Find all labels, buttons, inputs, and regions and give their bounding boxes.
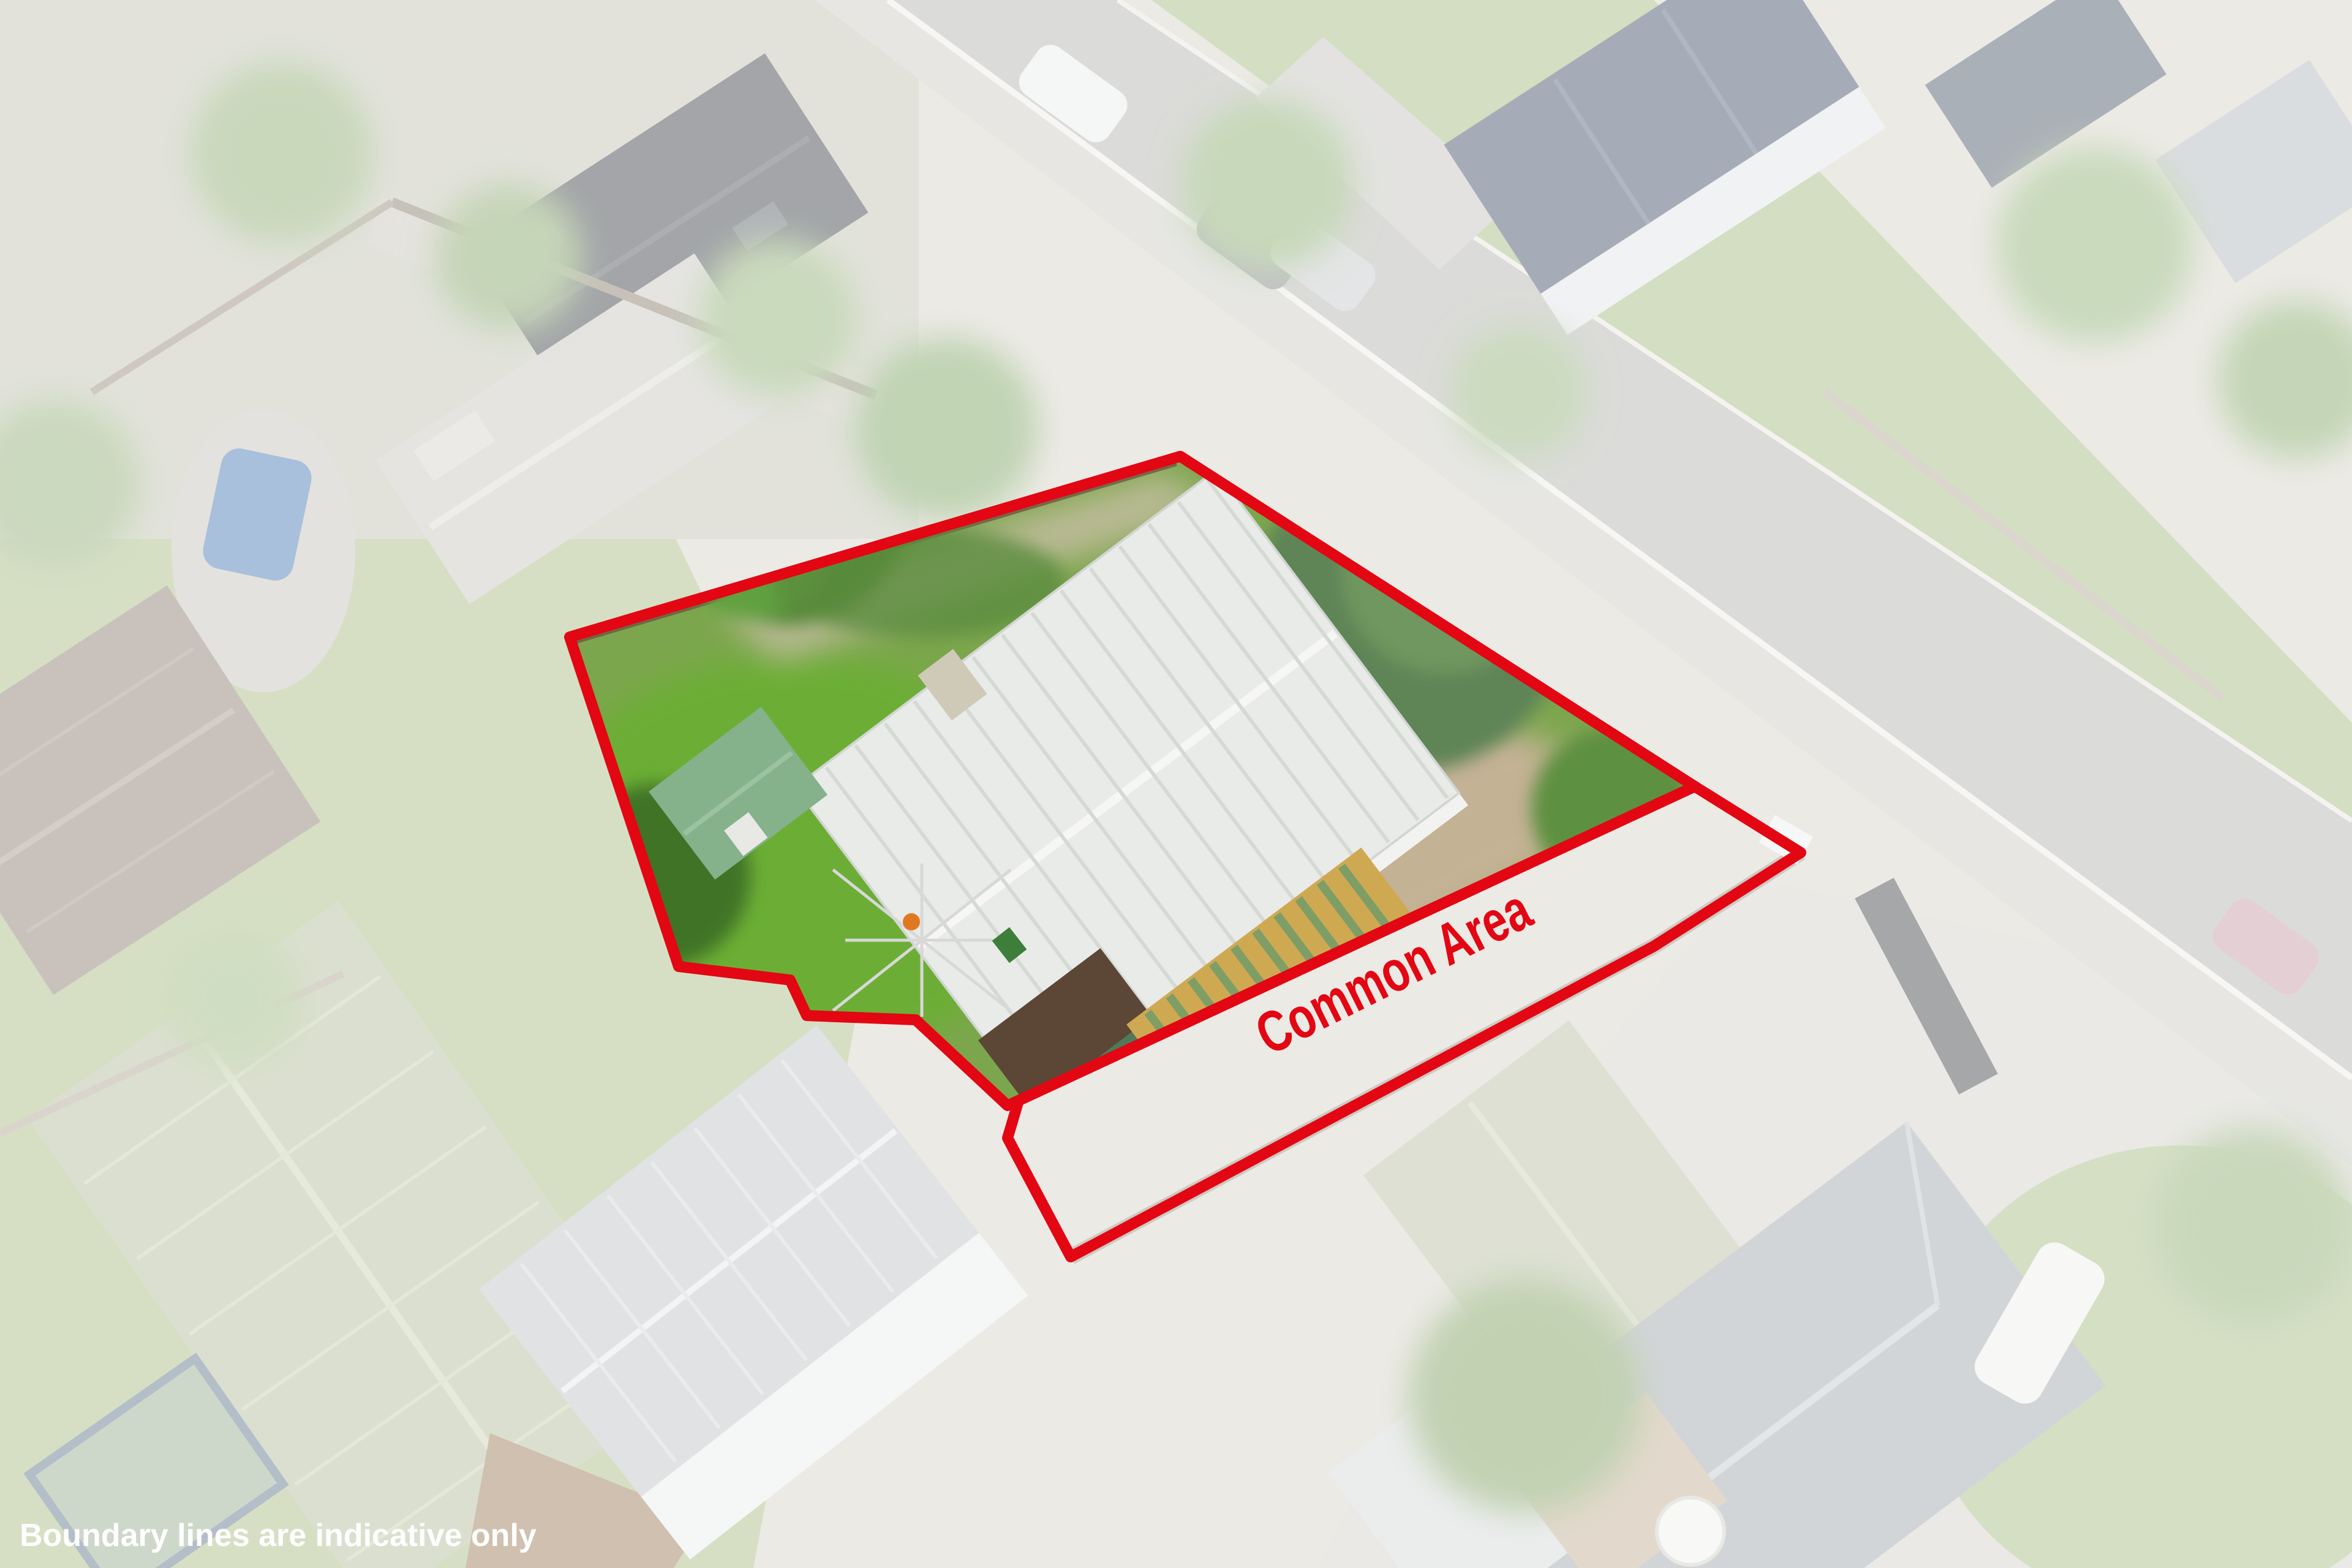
disclaimer-text: Boundary lines are indicative only [20,1518,537,1553]
aerial-photo-stage: Common Area Boundary lines are indicativ… [0,0,2352,1568]
aerial-photo-svg: Common Area Boundary lines are indicativ… [0,0,2352,1568]
orange-item [903,913,920,930]
